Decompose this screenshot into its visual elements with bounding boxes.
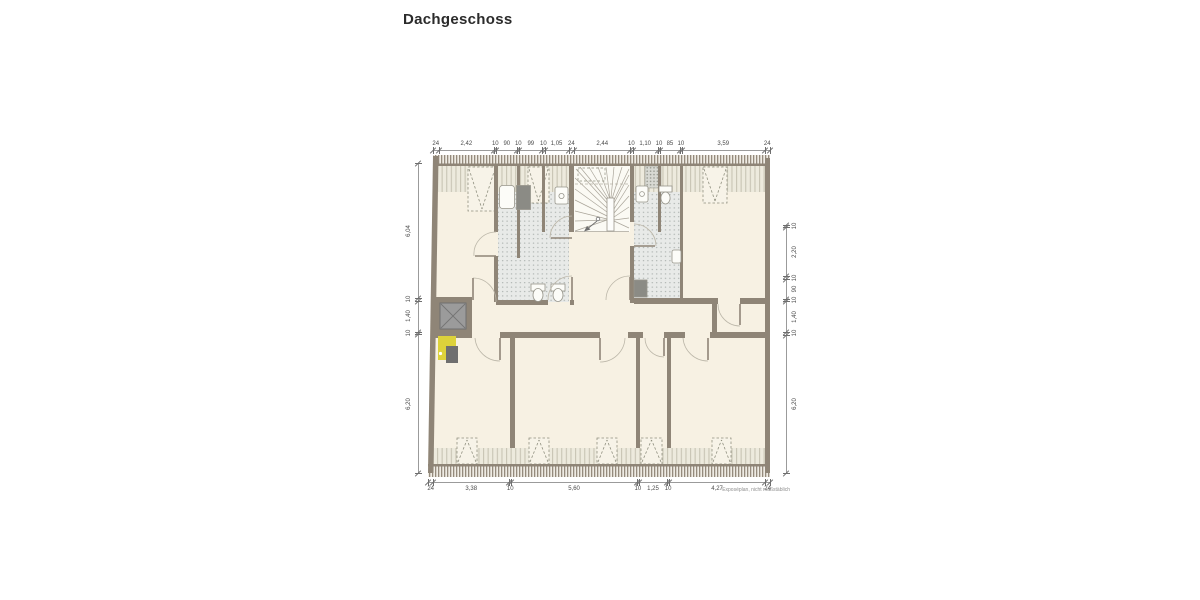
dim-label: 2,42 [451, 140, 481, 148]
dim-label: 24 [416, 485, 446, 493]
dim-chain-top [433, 150, 770, 151]
dim-label: 2,44 [587, 140, 617, 148]
dim-chain-right [786, 225, 787, 473]
dim-label: 5,60 [559, 485, 589, 493]
dim-label: 3,38 [456, 485, 486, 493]
dim-label: 6,20 [405, 389, 413, 419]
dim-label: 6,04 [405, 216, 413, 246]
floor-plan-page: Dachgeschoss [0, 0, 1200, 600]
dim-label: 10 [653, 485, 683, 493]
dim-label: 24 [752, 140, 782, 148]
dim-label: 10 [405, 318, 413, 348]
dim-label: 10 [495, 485, 525, 493]
dim-label: 24 [421, 140, 451, 148]
dim-label: 10 [666, 140, 696, 148]
footnote: Exposéplan, nicht maßstäblich [700, 487, 790, 493]
dim-chain-left [418, 163, 419, 473]
dim-label: 3,59 [708, 140, 738, 148]
dimension-chains: 242,4210901099101,05242,44101,101085103,… [0, 0, 1200, 600]
dim-label: 10 [791, 318, 799, 348]
dim-label: 6,20 [791, 389, 799, 419]
dim-label: 24 [556, 140, 586, 148]
dim-chain-bottom [428, 482, 770, 483]
